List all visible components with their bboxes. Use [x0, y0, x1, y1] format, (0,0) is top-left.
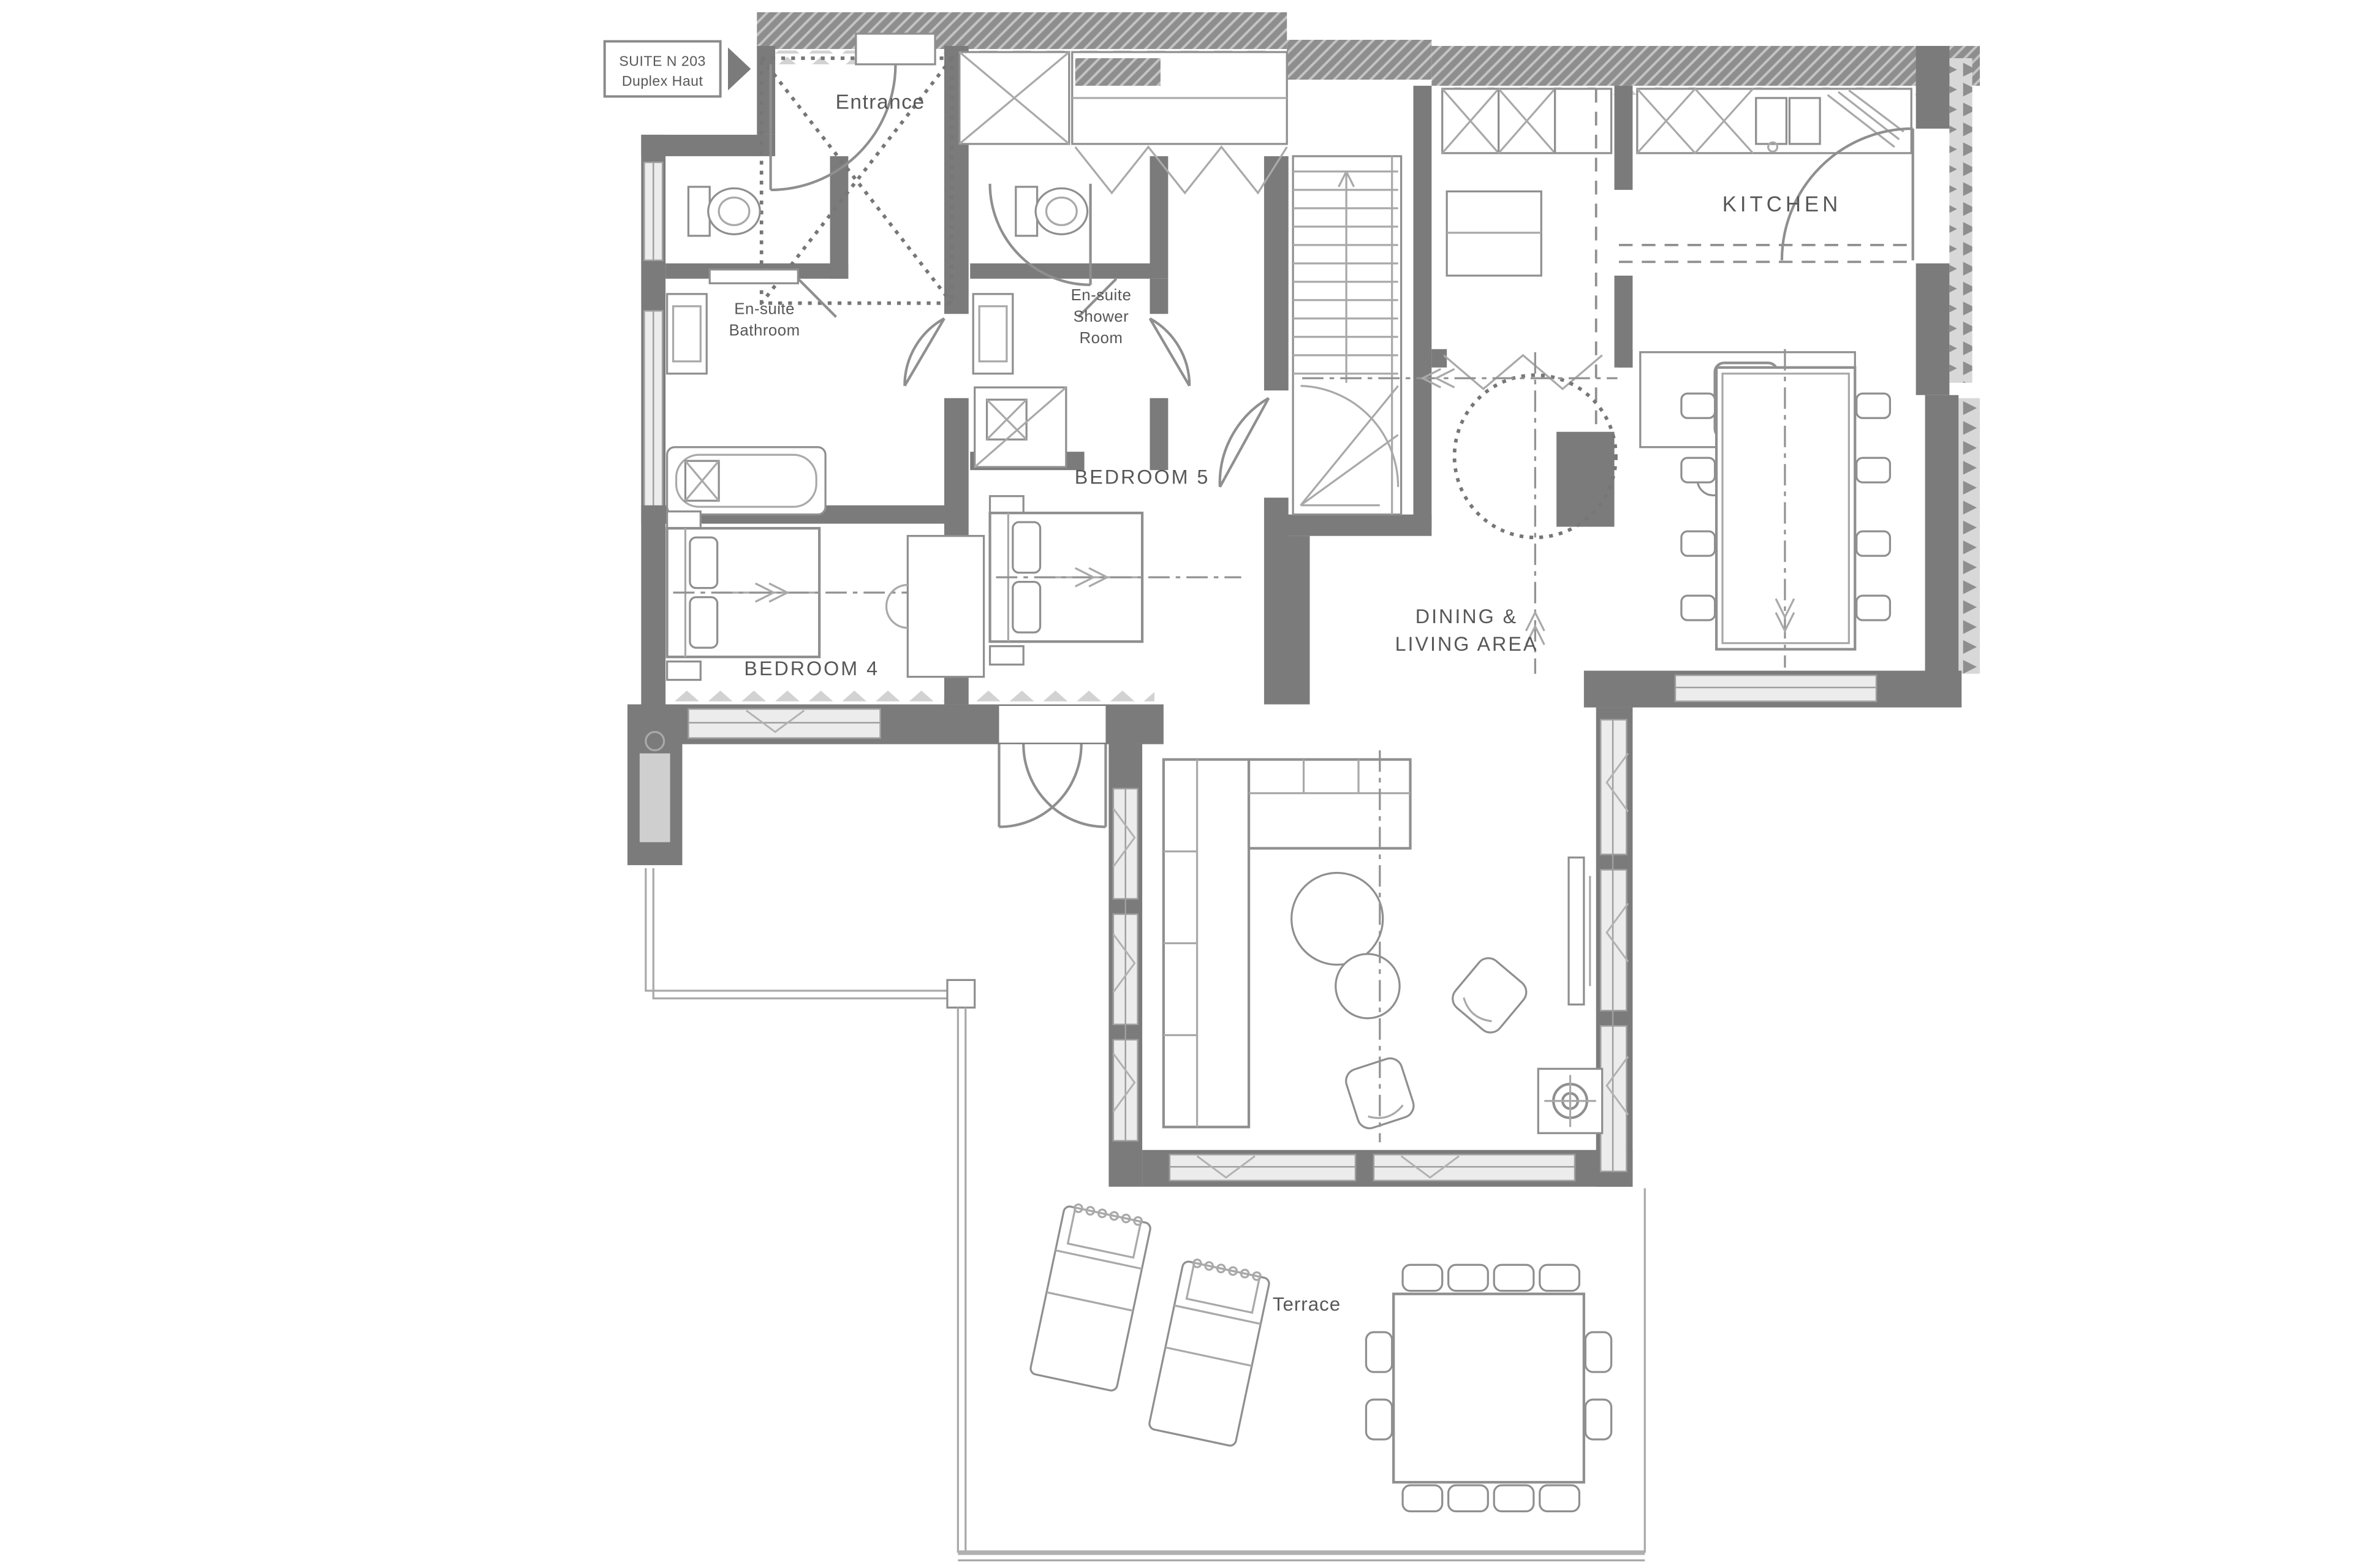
- terrace-edge-left: [958, 1007, 965, 1553]
- dining-chair: [1857, 458, 1890, 482]
- toilet-cistern: [1016, 187, 1037, 236]
- living-door-opening: [999, 706, 1105, 743]
- utility-kitchen-divider-a: [1615, 86, 1633, 190]
- tv-unit: [1569, 857, 1584, 1004]
- bathroom5-fixtures: [973, 187, 1087, 467]
- suite-label-line1: SUITE N 203: [619, 53, 706, 69]
- entrance-shelf: [856, 34, 935, 64]
- coffee-table-small: [1336, 954, 1400, 1018]
- top-wall-step: [1287, 40, 1431, 80]
- toilet-bowl: [708, 188, 760, 234]
- coffee-table-large: [1292, 873, 1383, 964]
- bedroom5-east-wall-a: [1264, 156, 1289, 390]
- corner-pier-inner: [640, 754, 670, 843]
- terrace-chair: [1403, 1265, 1442, 1290]
- shower-room-door: [1150, 319, 1190, 386]
- nightstand: [667, 662, 701, 680]
- utility-south-jamb-l: [1431, 349, 1447, 368]
- wc4-door: [798, 279, 836, 317]
- lounger-body: [1029, 1205, 1151, 1392]
- shower-east-wall-a: [1150, 279, 1169, 314]
- right-wall-lower: [1925, 395, 1959, 680]
- terrace-chair: [1449, 1485, 1488, 1511]
- terrace-table: [1393, 1294, 1584, 1482]
- dining-chair: [1857, 393, 1890, 418]
- top-wall-entrance: [757, 12, 1287, 49]
- bedroom4-furniture: [667, 512, 984, 680]
- bedroom5-label: BEDROOM 5: [1075, 466, 1210, 488]
- pillow: [1013, 582, 1040, 632]
- terrace-chair: [1449, 1265, 1488, 1290]
- kitchen-ceiling-dash-lines: [1619, 245, 1913, 262]
- hall-wardrobes: [960, 52, 1287, 193]
- bedroom5-door: [1220, 398, 1269, 487]
- utility-folding-doors: [1444, 355, 1602, 389]
- ensuite-shower-label-3: Room: [1080, 330, 1123, 347]
- bedroom5-furniture: [990, 496, 1241, 665]
- right-wall-cladding: [1949, 58, 1972, 383]
- bathroom4-fixtures: [667, 187, 825, 515]
- nightstand: [990, 646, 1024, 665]
- kitchen-sink-basin-2: [1789, 98, 1820, 144]
- bedroom4-label: BEDROOM 4: [744, 657, 879, 680]
- terrace-chair: [1585, 1399, 1611, 1439]
- wc5-east-wall: [1150, 156, 1169, 279]
- utility-room: [1442, 89, 1612, 432]
- kitchen-sink-basin-1: [1756, 98, 1787, 144]
- terrace-chair: [1366, 1332, 1392, 1372]
- armchair-1: [1448, 953, 1531, 1038]
- terrace-chair: [1494, 1485, 1534, 1511]
- right-wall-cladding2: [1958, 398, 1980, 674]
- lounger-body: [1148, 1260, 1270, 1447]
- terrace-furniture: [1029, 1202, 1611, 1511]
- right-wall-upper2: [1916, 263, 1950, 395]
- bedroom5-east-wall-b: [1264, 498, 1289, 704]
- dining-chair: [1681, 393, 1715, 418]
- living-double-doors: [999, 744, 1105, 827]
- suite-arrow-icon: [728, 47, 751, 90]
- pillow: [690, 597, 718, 648]
- entrance-zone: [762, 34, 952, 303]
- under-stair-wall: [1287, 515, 1431, 536]
- bathroom4-door: [904, 319, 944, 386]
- pillow: [690, 537, 718, 588]
- armchair-seat: [1448, 953, 1531, 1038]
- terrace-chair: [1540, 1485, 1580, 1511]
- staircase: [1293, 156, 1401, 515]
- terrace-post: [947, 980, 975, 1007]
- sofa-top-arm: [1249, 760, 1410, 849]
- kitchen-label: KITCHEN: [1722, 192, 1841, 216]
- closet-shelf-hatch: [1075, 58, 1161, 86]
- pillow: [1013, 522, 1040, 572]
- hall-living-wall: [1287, 536, 1309, 705]
- floor-plan-svg: SUITE N 203 Duplex Haut Entrance En-suit…: [0, 0, 2353, 1568]
- ensuite-bathroom-label-2: Bathroom: [729, 322, 800, 339]
- utility-south-jamb-r: [1618, 349, 1633, 368]
- ensuite-bathroom-label-1: En-suite: [734, 300, 795, 317]
- terrace-chair: [1366, 1399, 1392, 1439]
- stair-east-wall: [1413, 86, 1431, 530]
- top-wall-kitchen: [1431, 46, 1980, 86]
- ensuite-shower-label-2: Shower: [1074, 308, 1129, 325]
- terrace-chair: [1494, 1265, 1534, 1290]
- right-wall-upper: [1916, 46, 1950, 129]
- terrace-label: Terrace: [1273, 1293, 1341, 1315]
- dining-chair: [1681, 531, 1715, 556]
- dining-label-2: LIVING AREA: [1395, 633, 1539, 655]
- dining-chair: [1857, 596, 1890, 620]
- wc5-south-wall: [970, 263, 1153, 279]
- between-beds-niche: [887, 585, 908, 628]
- between-beds-unit: [907, 536, 983, 677]
- dining-chair: [1681, 596, 1715, 620]
- terrace-chair: [1585, 1332, 1611, 1372]
- sun-lounger-1: [1029, 1202, 1152, 1392]
- floor-plan-page: SUITE N 203 Duplex Haut Entrance En-suit…: [0, 0, 2353, 1568]
- shower-east-wall-b: [1150, 398, 1169, 470]
- living-furniture: [1164, 751, 1602, 1143]
- toilet-cistern: [688, 187, 710, 236]
- suite-label-line2: Duplex Haut: [622, 73, 703, 89]
- dining-label-1: DINING &: [1415, 605, 1518, 627]
- toilet-bowl: [1036, 188, 1088, 234]
- wall-finish-ticks: [637, 689, 1154, 703]
- bathroom-shelf: [710, 270, 798, 283]
- sun-lounger-2: [1148, 1257, 1271, 1447]
- terrace-chair: [1540, 1265, 1580, 1290]
- closet-bifold-doors: [1075, 147, 1287, 193]
- terrace-edge-west: [646, 868, 947, 998]
- ensuite-shower-label-1: En-suite: [1071, 287, 1132, 304]
- utility-cabinet-3: [1555, 89, 1612, 153]
- service-duct: [1556, 432, 1614, 527]
- dining-chair: [1857, 531, 1890, 556]
- northwest-connector-wall: [641, 135, 775, 156]
- terrace-chair: [1403, 1485, 1442, 1511]
- dining-chair: [1681, 458, 1715, 482]
- entrance-label: Entrance: [836, 91, 925, 113]
